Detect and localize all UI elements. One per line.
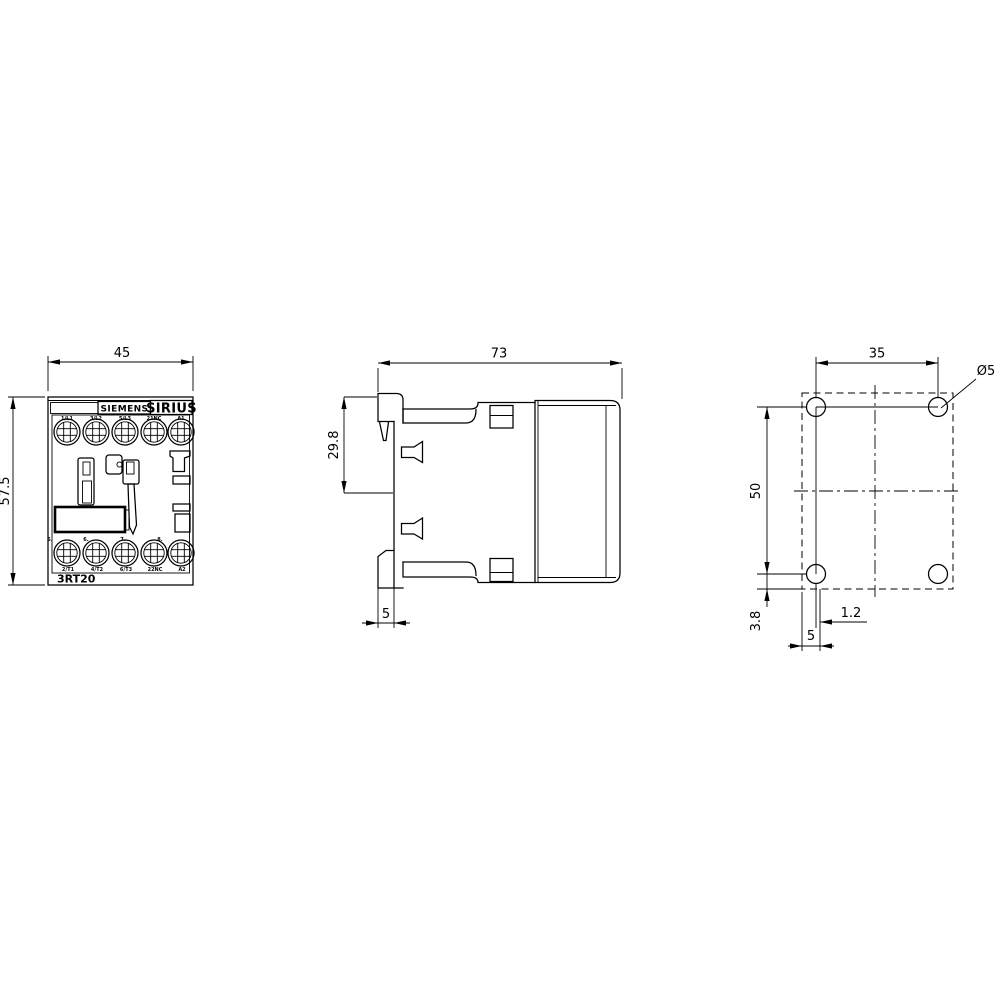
side-view: 73 29.8 bbox=[327, 347, 622, 629]
terminal-label: 21NC bbox=[147, 416, 162, 422]
side-depth-dimension: 73 bbox=[378, 347, 622, 400]
hole-pitch-v-dimension: 50 bbox=[749, 407, 807, 607]
front-height-dimension: 57.5 bbox=[0, 397, 45, 585]
side-clip-dimension: 5 bbox=[362, 607, 410, 626]
position-marker: 5. bbox=[47, 537, 52, 543]
side-clip-dim-label: 5 bbox=[382, 607, 390, 622]
hole-pitch-h-dimension: 35 bbox=[816, 347, 938, 398]
terminal-label: 1/L1 bbox=[61, 416, 73, 422]
bottom-terminal-screws bbox=[54, 540, 194, 566]
position-marker: 7. bbox=[120, 537, 125, 543]
side-arms bbox=[402, 403, 536, 583]
terminal-label: 6/T3 bbox=[120, 567, 133, 573]
hole-diameter-label: Ø5 bbox=[977, 364, 996, 379]
front-width-dim-label: 45 bbox=[114, 346, 131, 361]
front-label-strip bbox=[51, 403, 99, 414]
dimension-drawing-page: 45 57.5 SIEMENS SIRIUS bbox=[0, 0, 1000, 1000]
terminal-label: 3/L2 bbox=[90, 416, 102, 422]
latch-peg-top bbox=[402, 442, 423, 463]
front-view: 45 57.5 SIEMENS SIRIUS bbox=[0, 346, 197, 586]
latch-peg-bottom bbox=[402, 518, 423, 539]
front-mechanism-details bbox=[55, 451, 190, 534]
hole-pitch-h-label: 35 bbox=[869, 347, 886, 362]
hole-pitch-v-label: 50 bbox=[749, 483, 764, 500]
bottom-offset-label: 3.8 bbox=[749, 611, 764, 632]
mounting-hole-bottom-right bbox=[929, 565, 948, 584]
slot-offset-label: 1.2 bbox=[841, 606, 862, 621]
terminal-label: 22NC bbox=[148, 567, 163, 573]
hole-diameter-callout: Ø5 bbox=[941, 364, 995, 408]
din-rail-plate bbox=[378, 394, 403, 629]
model-label: 3RT20 bbox=[57, 573, 96, 586]
nameplate-window bbox=[55, 507, 125, 532]
slot-offset-dimension: 1.2 bbox=[816, 584, 867, 652]
terminal-label: A2 bbox=[178, 567, 186, 573]
position-marker: 6. bbox=[83, 537, 88, 543]
contactor-dimension-drawing: 45 57.5 SIEMENS SIRIUS bbox=[0, 0, 1000, 1000]
edge-offset-label: 5 bbox=[807, 629, 815, 644]
front-height-dim-label: 57.5 bbox=[0, 477, 13, 506]
top-terminal-screws bbox=[54, 419, 194, 445]
position-marker: 8. bbox=[157, 537, 162, 543]
mounting-view: 35 Ø5 50 3.8 1.2 bbox=[749, 347, 995, 652]
side-body-block bbox=[535, 401, 620, 583]
top-terminal-labels: 1/L1 3/L2 5/L3 21NC A1 bbox=[61, 416, 185, 422]
front-width-dimension: 45 bbox=[48, 346, 193, 391]
side-rail-dimension: 29.8 bbox=[327, 397, 393, 493]
terminal-label: 5/L3 bbox=[119, 416, 131, 422]
side-rail-dim-label: 29.8 bbox=[327, 431, 342, 460]
terminal-label: A1 bbox=[177, 416, 185, 422]
brand-label: SIEMENS bbox=[101, 405, 149, 415]
series-label: SIRIUS bbox=[146, 402, 197, 417]
mounting-holes bbox=[807, 398, 948, 584]
bottom-offset-dimension: 3.8 bbox=[749, 589, 802, 631]
side-depth-dim-label: 73 bbox=[491, 347, 508, 362]
